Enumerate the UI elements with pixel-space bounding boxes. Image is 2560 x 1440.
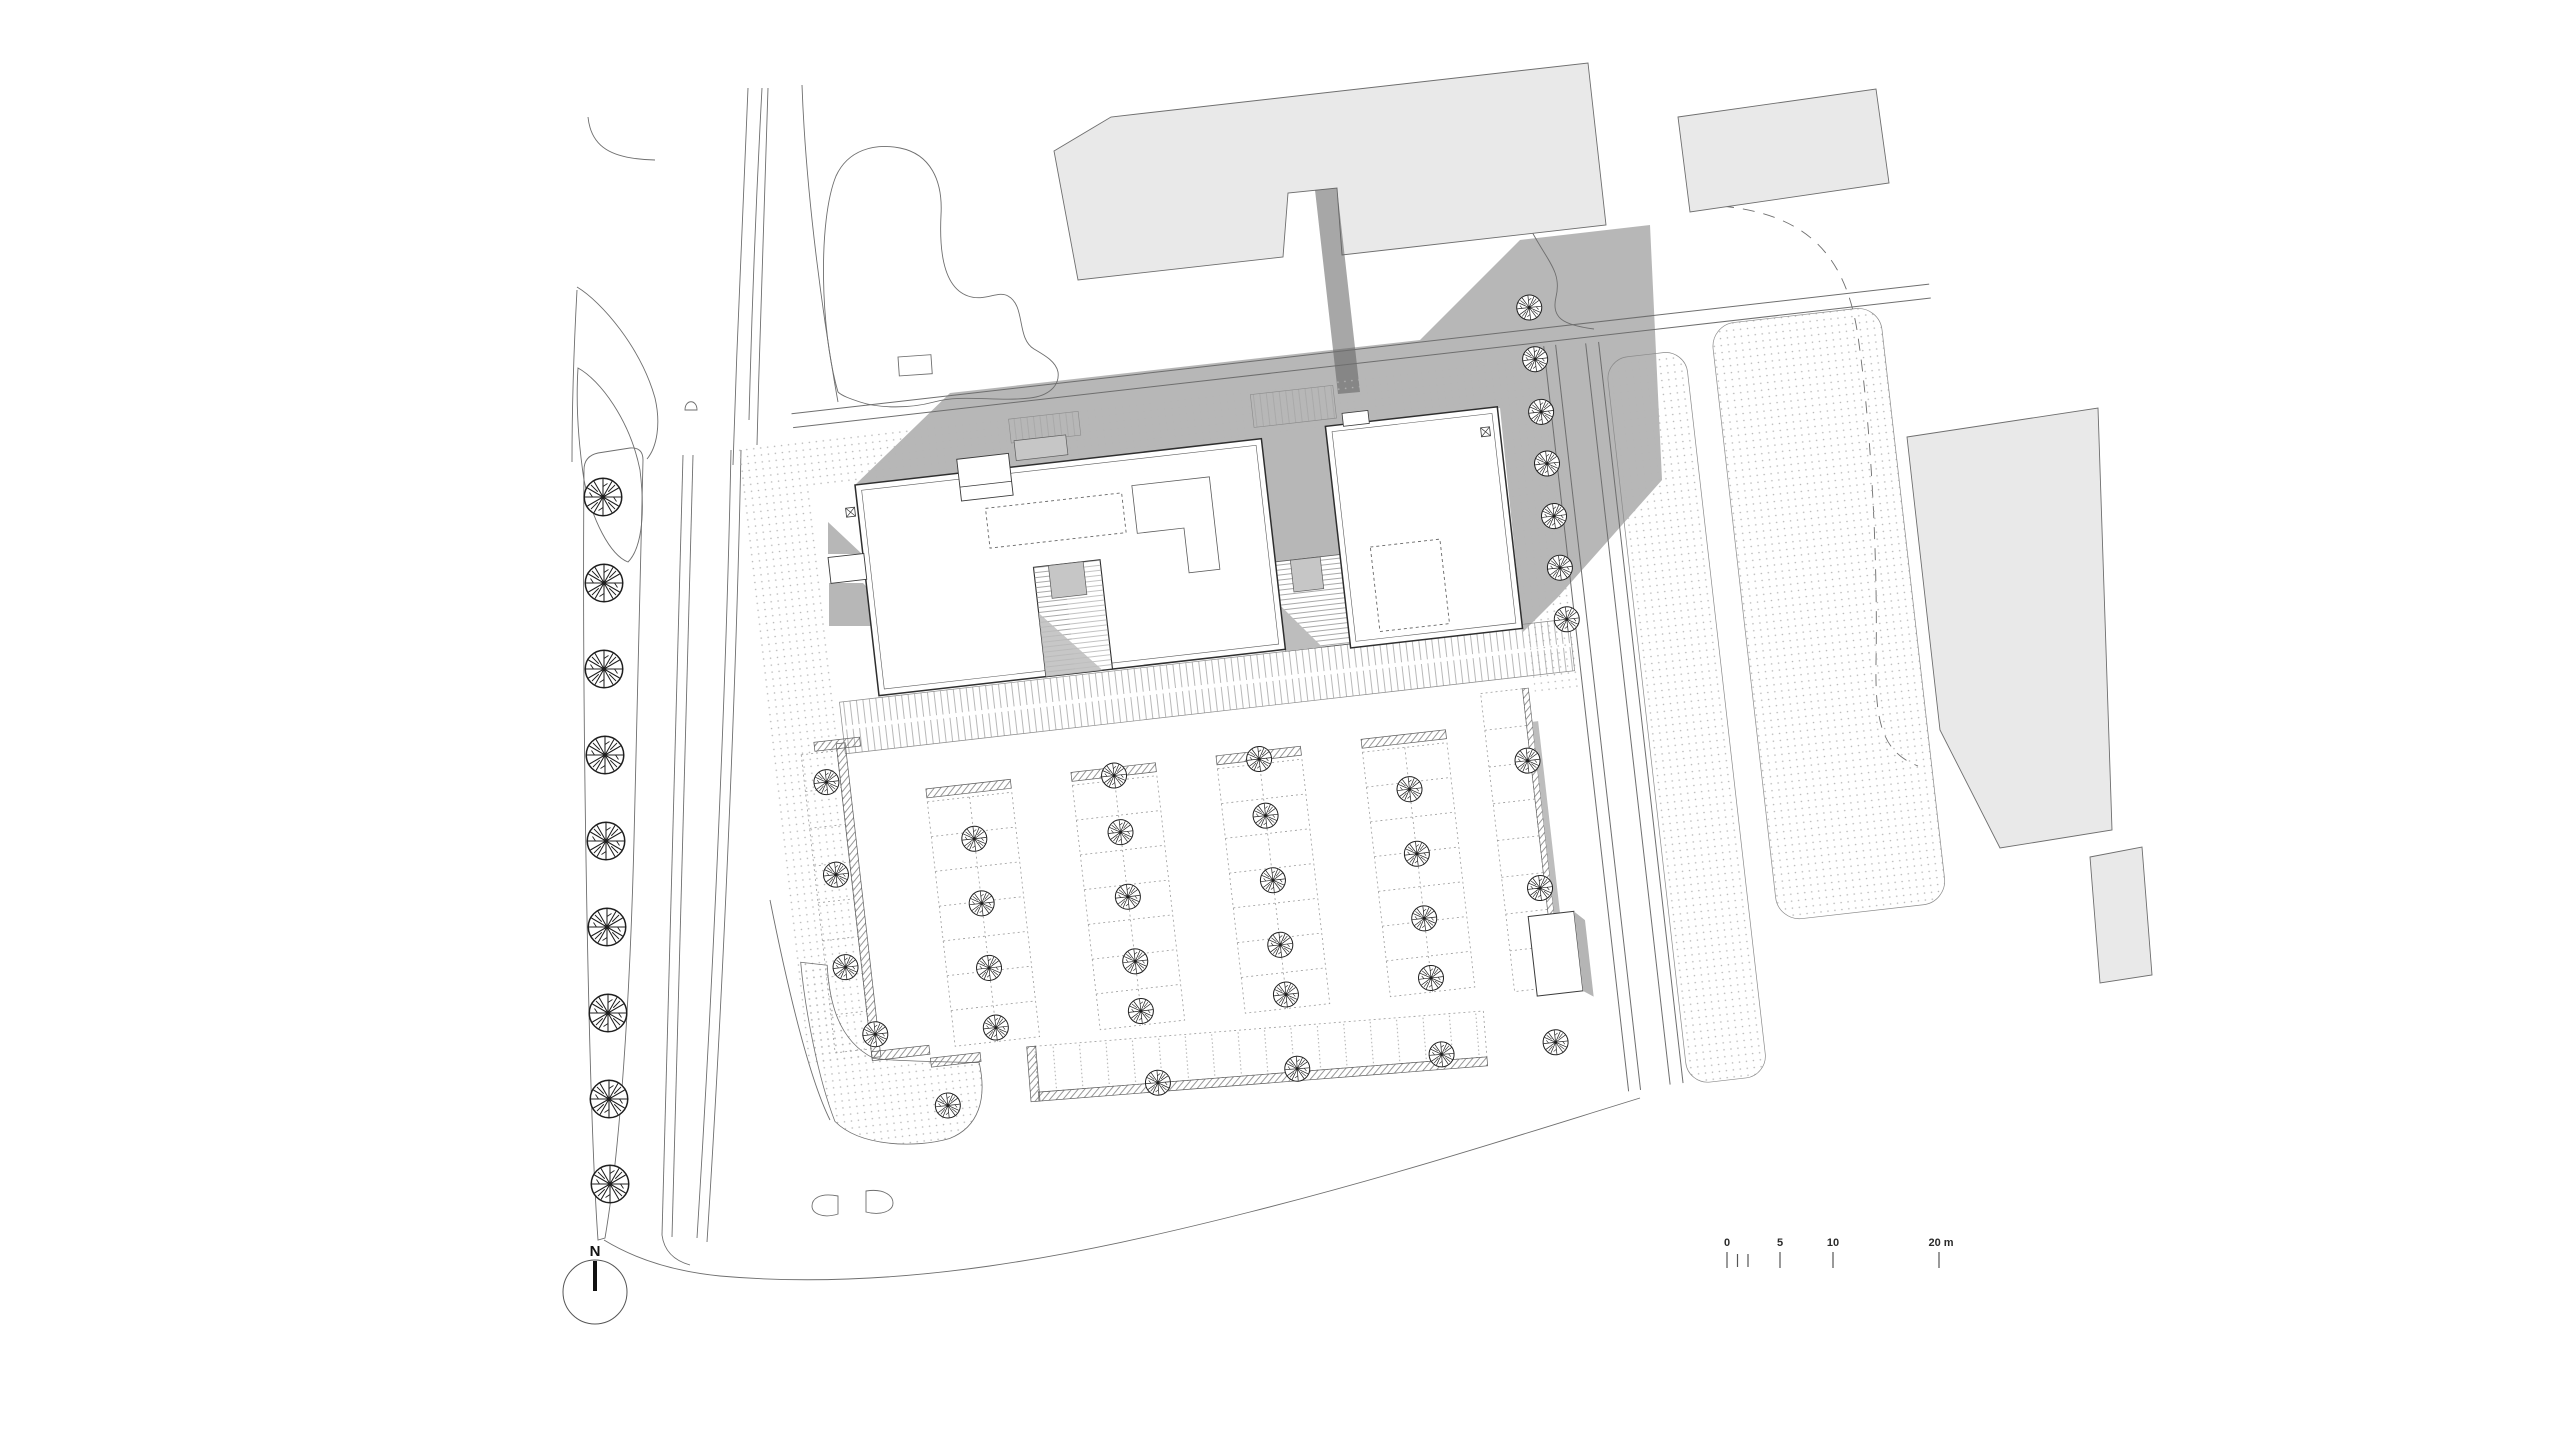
north-label: N — [590, 1243, 601, 1260]
drain-marker-east — [1481, 427, 1491, 437]
tree-icon — [585, 564, 623, 602]
tree-icon — [1100, 762, 1128, 790]
kiosk-building — [1528, 911, 1583, 996]
tree-icon — [1403, 840, 1431, 868]
context-building-top-right — [1678, 89, 1889, 212]
map-symbols — [812, 1190, 893, 1215]
tree-icon — [1114, 883, 1142, 911]
tree-icon — [1245, 745, 1273, 773]
tree-icon — [589, 994, 627, 1032]
scale-label-5: 5 — [1777, 1237, 1783, 1249]
tree-icon — [588, 908, 626, 946]
tree-icon — [1542, 1028, 1570, 1056]
tree-icon — [1121, 948, 1149, 976]
scale-bar: 0 5 10 20 m — [1724, 1237, 1954, 1268]
road-left-2 — [749, 88, 762, 420]
tree-icon — [1127, 997, 1155, 1025]
tree-icon — [591, 1165, 629, 1203]
utility-box — [898, 355, 932, 376]
tree-icon — [1272, 981, 1300, 1009]
street-trees — [584, 478, 629, 1203]
site-plan-page: N 0 5 10 20 m — [0, 0, 2560, 1440]
tree-icon — [968, 890, 996, 918]
contour-wedge-left — [577, 287, 658, 459]
gap-elevator — [1290, 557, 1323, 592]
site-plan-svg: N 0 5 10 20 m — [0, 0, 2560, 1440]
contour-green-blob — [823, 146, 1058, 406]
tree-icon — [1410, 905, 1438, 933]
road-bottom-join — [662, 1235, 690, 1265]
road-bottom-long — [604, 1098, 1640, 1280]
scale-label-20m: 20 m — [1928, 1237, 1953, 1249]
north-arrow: N — [563, 1243, 627, 1324]
drain-marker-west — [846, 507, 856, 517]
annex-shadow-1 — [828, 522, 862, 554]
sidewalk-far-east — [1710, 306, 1947, 921]
site-rotated-frame — [731, 250, 2016, 1183]
main-building-east — [1324, 396, 1522, 648]
contour-wedge-left-2 — [572, 290, 577, 462]
west-annex — [828, 553, 867, 583]
scale-label-0: 0 — [1724, 1237, 1730, 1249]
path-arc-topleft — [588, 117, 655, 160]
tree-icon — [1266, 931, 1294, 959]
tree-icon — [975, 954, 1003, 982]
small-arch — [685, 402, 697, 410]
half-moon-left — [812, 1195, 838, 1216]
parking-south-row — [1027, 1011, 1488, 1105]
tree-icon — [587, 822, 625, 860]
tree-icon — [982, 1014, 1010, 1042]
road-left-1 — [733, 88, 748, 465]
tree-icon — [585, 650, 623, 688]
tree-icon — [586, 736, 624, 774]
tree-icon — [960, 825, 988, 853]
scale-ticks — [1727, 1252, 1939, 1268]
tree-icon — [1107, 818, 1135, 846]
parking-spine-trees — [955, 729, 1445, 1042]
road-left-3 — [757, 88, 768, 445]
road-left-5 — [662, 455, 683, 1235]
road-left-8 — [707, 450, 741, 1242]
elevator-core — [1048, 562, 1087, 599]
parking-east-row — [1481, 685, 1600, 1059]
tree-icon — [1417, 964, 1445, 992]
tree-icon — [1252, 802, 1280, 830]
main-building-east-outline — [1325, 407, 1522, 648]
road-left-4 — [802, 85, 838, 402]
context-building-far-right — [1907, 408, 2112, 848]
east-roof-protrusion — [1342, 410, 1369, 426]
road-left-6 — [672, 455, 693, 1237]
tree-icon — [590, 1080, 628, 1118]
tree-icon — [1396, 775, 1424, 803]
tree-icon — [1259, 866, 1287, 894]
scale-label-10: 10 — [1827, 1237, 1839, 1249]
tree-icon — [584, 478, 622, 516]
context-building-far-right-wedge — [2090, 847, 2152, 983]
street-verge — [584, 448, 643, 1240]
stair-void — [1033, 560, 1112, 677]
half-moon-right — [866, 1190, 893, 1213]
entrance-canopy — [957, 453, 1013, 501]
contour-island-left — [577, 368, 642, 562]
